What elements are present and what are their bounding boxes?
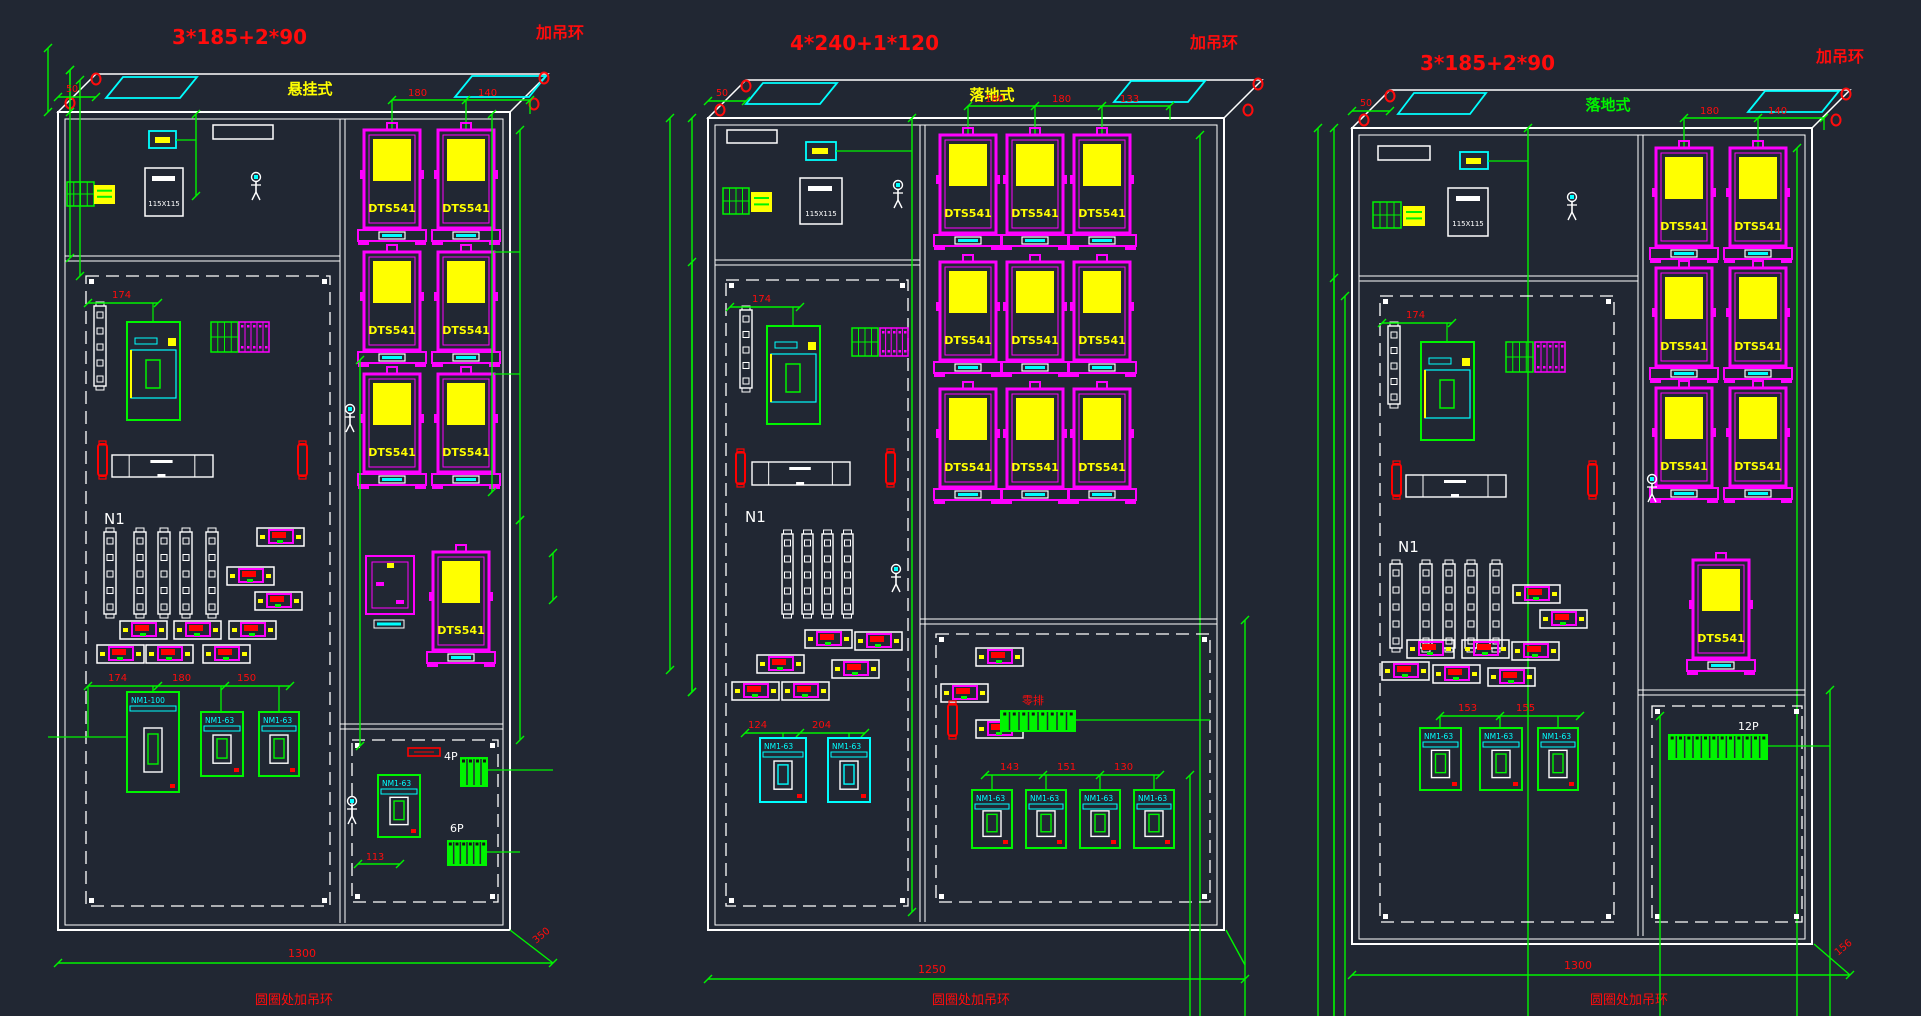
meter-model-label: DTS541 [1078,461,1126,474]
meter-model-label: DTS541 [1011,334,1059,347]
group-label: N1 [1398,538,1419,556]
dim-label: 156 [1833,938,1855,959]
dim-label: 174 [112,290,131,301]
drawing-canvas: 悬挂式3*185+2*90加吊环圆圈处加吊环115X115174N1174180… [0,0,1921,1016]
breaker-model-label: NM1-63 [263,716,292,725]
meter-model-label: DTS541 [1697,632,1745,645]
bottom-caption: 圆圈处加吊环 [1590,993,1668,1008]
breaker-model-label: NM1-63 [764,742,793,751]
meter-model-label: DTS541 [944,207,992,220]
meter-model-label: DTS541 [368,446,416,459]
dim-label: 350 [531,926,553,947]
dim-label: 180 [172,673,191,684]
meter-model-label: DTS541 [437,624,485,637]
breaker-model-label: NM1-63 [832,742,861,751]
meter-model-label: DTS541 [442,446,490,459]
lifting-ring-mark [1244,105,1253,116]
dim-label: 143 [1000,762,1019,773]
operator-figure-icon [893,181,903,209]
operator-figure-icon [891,565,901,593]
meter-model-label: DTS541 [944,461,992,474]
cable-spec-label: 3*185+2*90 [1420,51,1555,75]
dim-label: 180 [985,94,1004,105]
dim-label: 50 [1360,98,1372,109]
cable-spec-label: 3*185+2*90 [172,25,307,49]
busbar-label: 零排 [1022,693,1044,707]
lifting-ring-note: 加吊环 [535,23,584,42]
operator-figure-icon [1567,193,1577,221]
dim-label: 140 [478,88,497,99]
breaker-model-label: NM1-63 [1542,732,1571,741]
operator-figure-icon [251,173,261,201]
meter-model-label: DTS541 [1734,220,1782,233]
pole-count-label: 12P [1738,720,1759,733]
lifting-ring-mark [1832,115,1841,126]
board-size-label: 115X115 [805,210,837,218]
mount-type-title: 落地式 [1585,96,1630,114]
lifting-ring-mark [742,81,751,92]
dim-label: 1300 [1564,959,1592,972]
dim-label: 113 [366,852,384,863]
dim-label: 174 [1406,310,1425,321]
meter-model-label: DTS541 [1078,334,1126,347]
dim-label: 150 [237,673,256,684]
dim-label: 180 [1700,106,1719,117]
lifting-ring-note: 加吊环 [1189,33,1238,52]
dim-label: 50 [716,88,728,99]
meter-model-label: DTS541 [1011,461,1059,474]
meter-model-label: DTS541 [1660,340,1708,353]
cabinet-3: 落地式3*185+2*90加吊环圆圈处加吊环115X115174N1153155… [1314,47,1864,1016]
dim-label: 174 [752,294,771,305]
dim-label: 1300 [288,947,316,960]
mount-type-title: 悬挂式 [287,80,332,98]
breaker-model-label: NM1-63 [1138,794,1167,803]
dim-label: 180 [1052,94,1071,105]
cabinet-2: 落地式4*240+1*120加吊环圆圈处加吊环115X115174N112420… [666,31,1263,1016]
meter-model-label: DTS541 [368,324,416,337]
dim-label: 153 [1458,703,1477,714]
breaker-model-label: NM1-63 [1084,794,1113,803]
breaker-model-label: NM1-63 [1484,732,1513,741]
operator-figure-icon [345,405,355,433]
pole-count-label: 4P [444,750,458,763]
breaker-model-label: NM1-63 [382,779,411,788]
breaker-model-label: NM1-63 [1424,732,1453,741]
lifting-ring-mark [92,74,101,85]
dim-label: 124 [748,720,767,731]
bottom-caption: 圆圈处加吊环 [255,993,333,1008]
board-size-label: 115X115 [1452,220,1484,228]
meter-model-label: DTS541 [1734,460,1782,473]
meter-model-label: DTS541 [442,202,490,215]
meter-model-label: DTS541 [944,334,992,347]
cad-drawing-sheet: 悬挂式3*185+2*90加吊环圆圈处加吊环115X115174N1174180… [0,0,1921,1016]
meter-model-label: DTS541 [1011,207,1059,220]
dim-label: 50 [66,84,78,95]
cable-spec-label: 4*240+1*120 [790,31,939,55]
dim-label: 204 [812,720,831,731]
breaker-model-label: NM1-63 [205,716,234,725]
lifting-ring-mark [530,99,539,110]
dim-label: 151 [1057,762,1076,773]
dim-label: 130 [1114,762,1133,773]
board-size-label: 115X115 [148,200,180,208]
operator-figure-icon [347,797,357,825]
pole-count-label: 6P [450,822,464,835]
meter-model-label: DTS541 [1660,460,1708,473]
meter-model-label: DTS541 [442,324,490,337]
meter-model-label: DTS541 [1078,207,1126,220]
breaker-model-label: NM1-63 [976,794,1005,803]
dim-label: 133 [1120,94,1139,105]
dim-label: 174 [108,673,127,684]
breaker-model-label: NM1-63 [1030,794,1059,803]
dim-label: 140 [1768,106,1787,117]
dim-label: 180 [408,88,427,99]
group-label: N1 [104,510,125,528]
bottom-caption: 圆圈处加吊环 [932,993,1010,1008]
breaker-model-label: NM1-100 [131,696,165,705]
meter-model-label: DTS541 [1734,340,1782,353]
meter-model-label: DTS541 [1660,220,1708,233]
group-label: N1 [745,508,766,526]
dim-label: 155 [1516,703,1535,714]
meter-model-label: DTS541 [368,202,416,215]
dim-label: 1250 [918,963,946,976]
lifting-ring-note: 加吊环 [1815,47,1864,66]
cabinet-1: 悬挂式3*185+2*90加吊环圆圈处加吊环115X115174N1174180… [44,23,584,1008]
lifting-ring-mark [1386,91,1395,102]
